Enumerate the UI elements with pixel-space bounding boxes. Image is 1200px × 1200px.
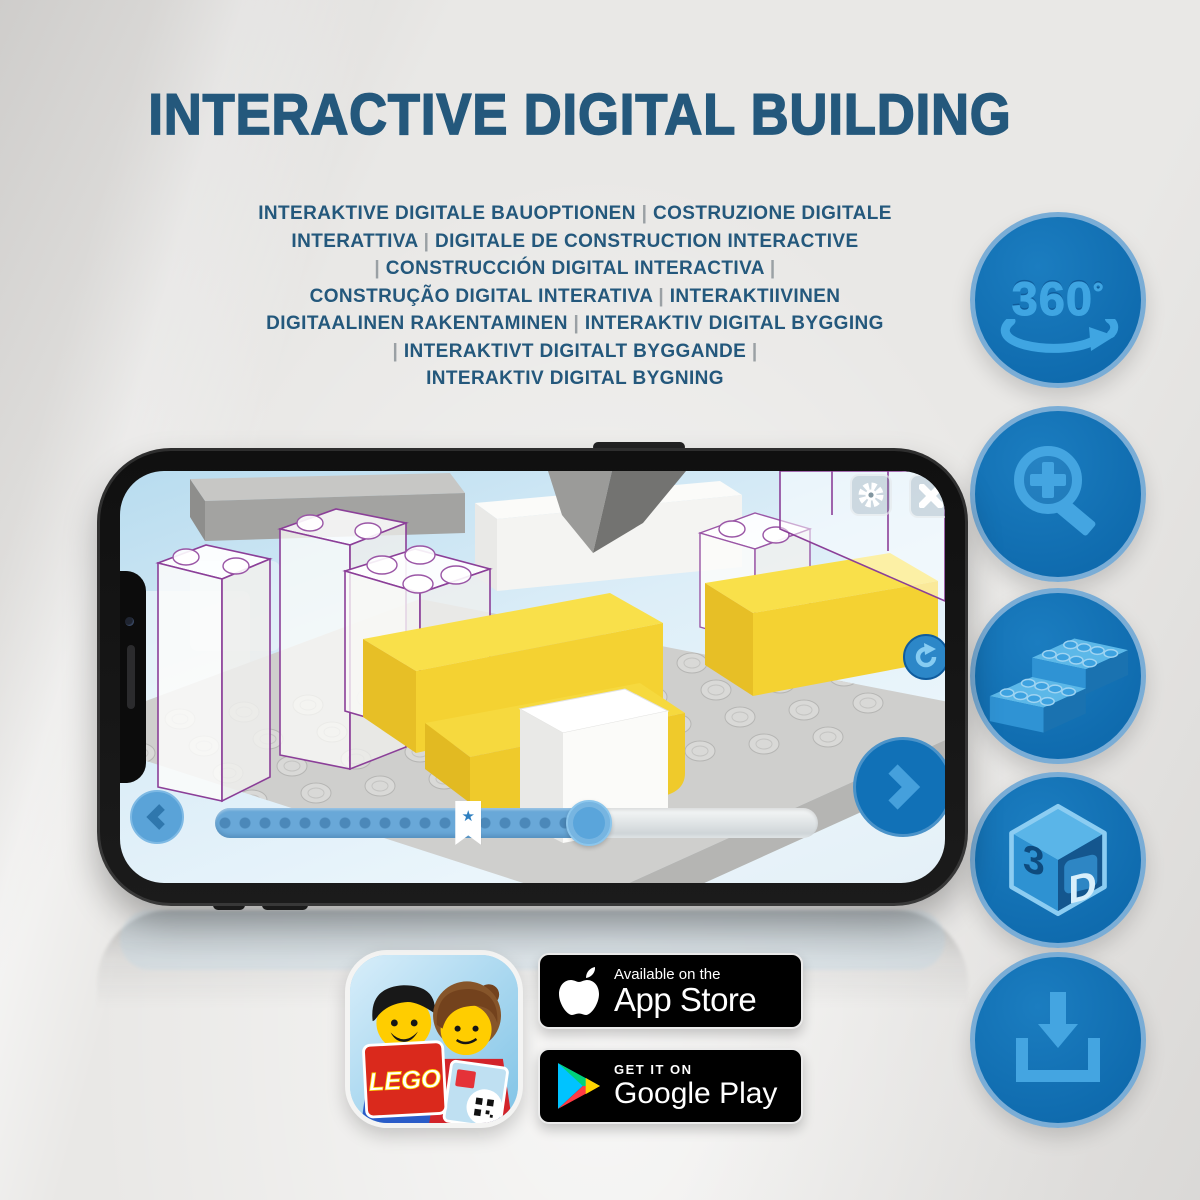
google-play-triangle-icon	[558, 1063, 600, 1109]
svg-text:3: 3	[1023, 836, 1045, 885]
gear-icon	[858, 482, 884, 508]
phone-screen: ★	[120, 471, 945, 883]
google-play-line1: GET IT ON	[614, 1062, 777, 1078]
app-store-line1: Available on the	[614, 966, 756, 983]
subtitle-line: CONSTRUÇÃO DIGITAL INTERATIVA | INTERAKT…	[165, 283, 985, 311]
3d-cube-icon: 3 D	[996, 798, 1120, 922]
page-title: INTERACTIVE DIGITAL BUILDING	[17, 82, 1142, 148]
settings-button[interactable]	[850, 474, 892, 516]
lego-bricks-icon	[986, 615, 1130, 737]
previous-step-button[interactable]	[130, 790, 184, 844]
svg-text:LEGO: LEGO	[368, 1065, 442, 1097]
download-icon	[1000, 982, 1116, 1098]
next-step-button[interactable]	[853, 737, 945, 837]
feature-zoom-badge	[970, 406, 1146, 582]
apple-logo-icon	[556, 965, 600, 1017]
phone-mockup: ★	[97, 448, 968, 906]
subtitle-line: INTERAKTIV DIGITAL BYGNING	[165, 365, 985, 393]
progress-slider-handle[interactable]	[566, 800, 612, 846]
subtitle-multilingual: INTERAKTIVE DIGITALE BAUOPTIONEN | COSTR…	[165, 200, 985, 393]
subtitle-line: | CONSTRUCCIÓN DIGITAL INTERACTIVA |	[165, 255, 985, 283]
google-play-line2: Google Play	[614, 1078, 777, 1110]
lego-app-artwork: LEGO	[350, 955, 518, 1123]
feature-3d-badge: 3 D	[970, 772, 1146, 948]
close-button[interactable]	[909, 474, 945, 518]
earpiece-speaker-icon	[127, 645, 135, 709]
close-icon	[919, 484, 943, 508]
360-rotation-arrow-icon	[997, 319, 1119, 355]
phone-reflection	[97, 910, 968, 1025]
feature-download-badge	[970, 952, 1146, 1128]
chevron-left-icon	[145, 803, 169, 831]
feature-bricks-badge	[970, 588, 1146, 764]
app-store-line2: App Store	[614, 983, 756, 1017]
rotate-view-button[interactable]	[903, 634, 945, 680]
subtitle-line: DIGITAALINEN RAKENTAMINEN | INTERAKTIV D…	[165, 310, 985, 338]
phone-notch	[120, 571, 146, 783]
feature-360-rotation-badge: 360°	[970, 212, 1146, 388]
app-store-badge[interactable]: Available on the App Store	[538, 953, 803, 1029]
lego-app-icon[interactable]: LEGO	[345, 950, 523, 1128]
svg-text:D: D	[1068, 862, 1096, 912]
chevron-right-icon	[883, 763, 923, 811]
subtitle-line: INTERAKTIVE DIGITALE BAUOPTIONEN | COSTR…	[165, 200, 985, 228]
build-progress-slider[interactable]: ★	[215, 808, 818, 838]
360-degrees-label: 360°	[1012, 272, 1105, 319]
progress-fill	[215, 808, 589, 838]
google-play-badge[interactable]: GET IT ON Google Play	[538, 1048, 803, 1124]
poster: INTERACTIVE DIGITAL BUILDING INTERAKTIVE…	[0, 0, 1200, 1200]
subtitle-line: INTERATTIVA | DIGITALE DE CONSTRUCTION I…	[165, 228, 985, 256]
front-camera-icon	[125, 617, 134, 626]
zoom-in-icon	[1000, 436, 1116, 552]
subtitle-line: | INTERAKTIVT DIGITALT BYGGANDE |	[165, 338, 985, 366]
rotate-icon	[912, 643, 940, 671]
